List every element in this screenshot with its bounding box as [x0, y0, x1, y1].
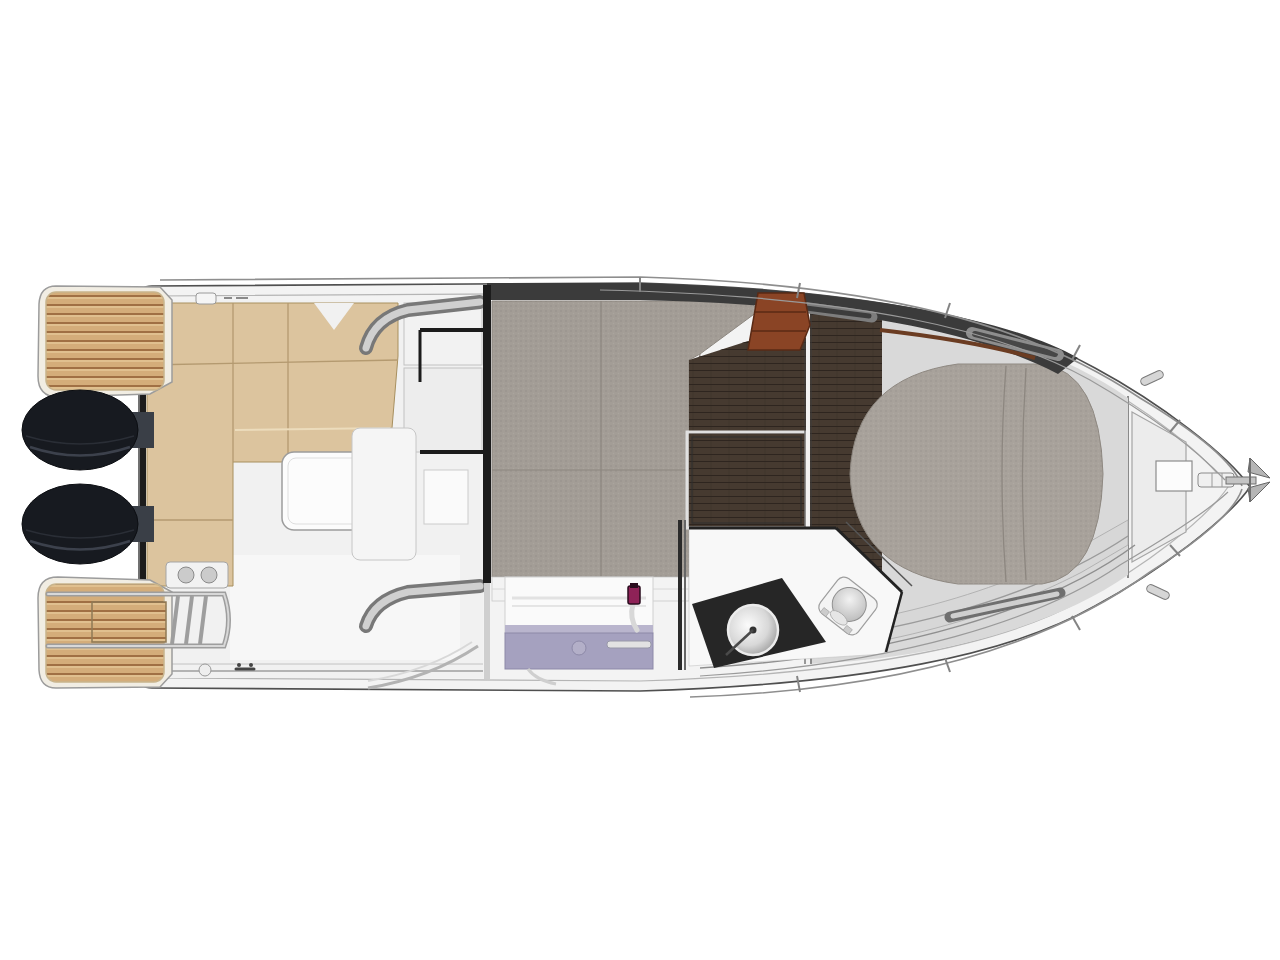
galley	[505, 577, 653, 684]
fwd-berth-texture	[850, 364, 1103, 584]
head-wall-left-2	[684, 520, 686, 670]
outboard-engine-port	[22, 390, 154, 470]
galley-faucet-knob	[628, 586, 640, 604]
boat-floor-plan	[0, 0, 1280, 960]
fuel-filler	[199, 664, 211, 676]
outboard-engines	[22, 390, 154, 564]
galley-counter-edge	[505, 625, 653, 633]
galley-faucet-cap	[630, 583, 638, 588]
ladder-teak-step	[92, 602, 166, 642]
outboard-engine-starboard	[22, 484, 154, 564]
bow-cleat-starboard	[1145, 583, 1170, 600]
galley-handle	[607, 641, 651, 648]
cockpit-floor-light	[230, 555, 460, 660]
bow-cleat-port	[1139, 369, 1164, 386]
head-wall-left	[678, 520, 682, 670]
forward-berth	[850, 364, 1103, 584]
cabin-bulkhead	[483, 285, 491, 679]
platform-port-teak	[46, 292, 164, 390]
steps-wood	[748, 293, 810, 350]
windlass	[1156, 461, 1192, 491]
cupholder-panel	[166, 562, 228, 588]
cabin-floor-mid	[687, 338, 806, 528]
galley-sink-drain	[572, 641, 586, 655]
cockpit	[140, 293, 483, 688]
swim-platform-port	[38, 286, 172, 397]
gunwale-badge	[196, 293, 216, 304]
floor-plan-drawing	[0, 0, 1280, 960]
companionway-steps	[748, 293, 810, 350]
